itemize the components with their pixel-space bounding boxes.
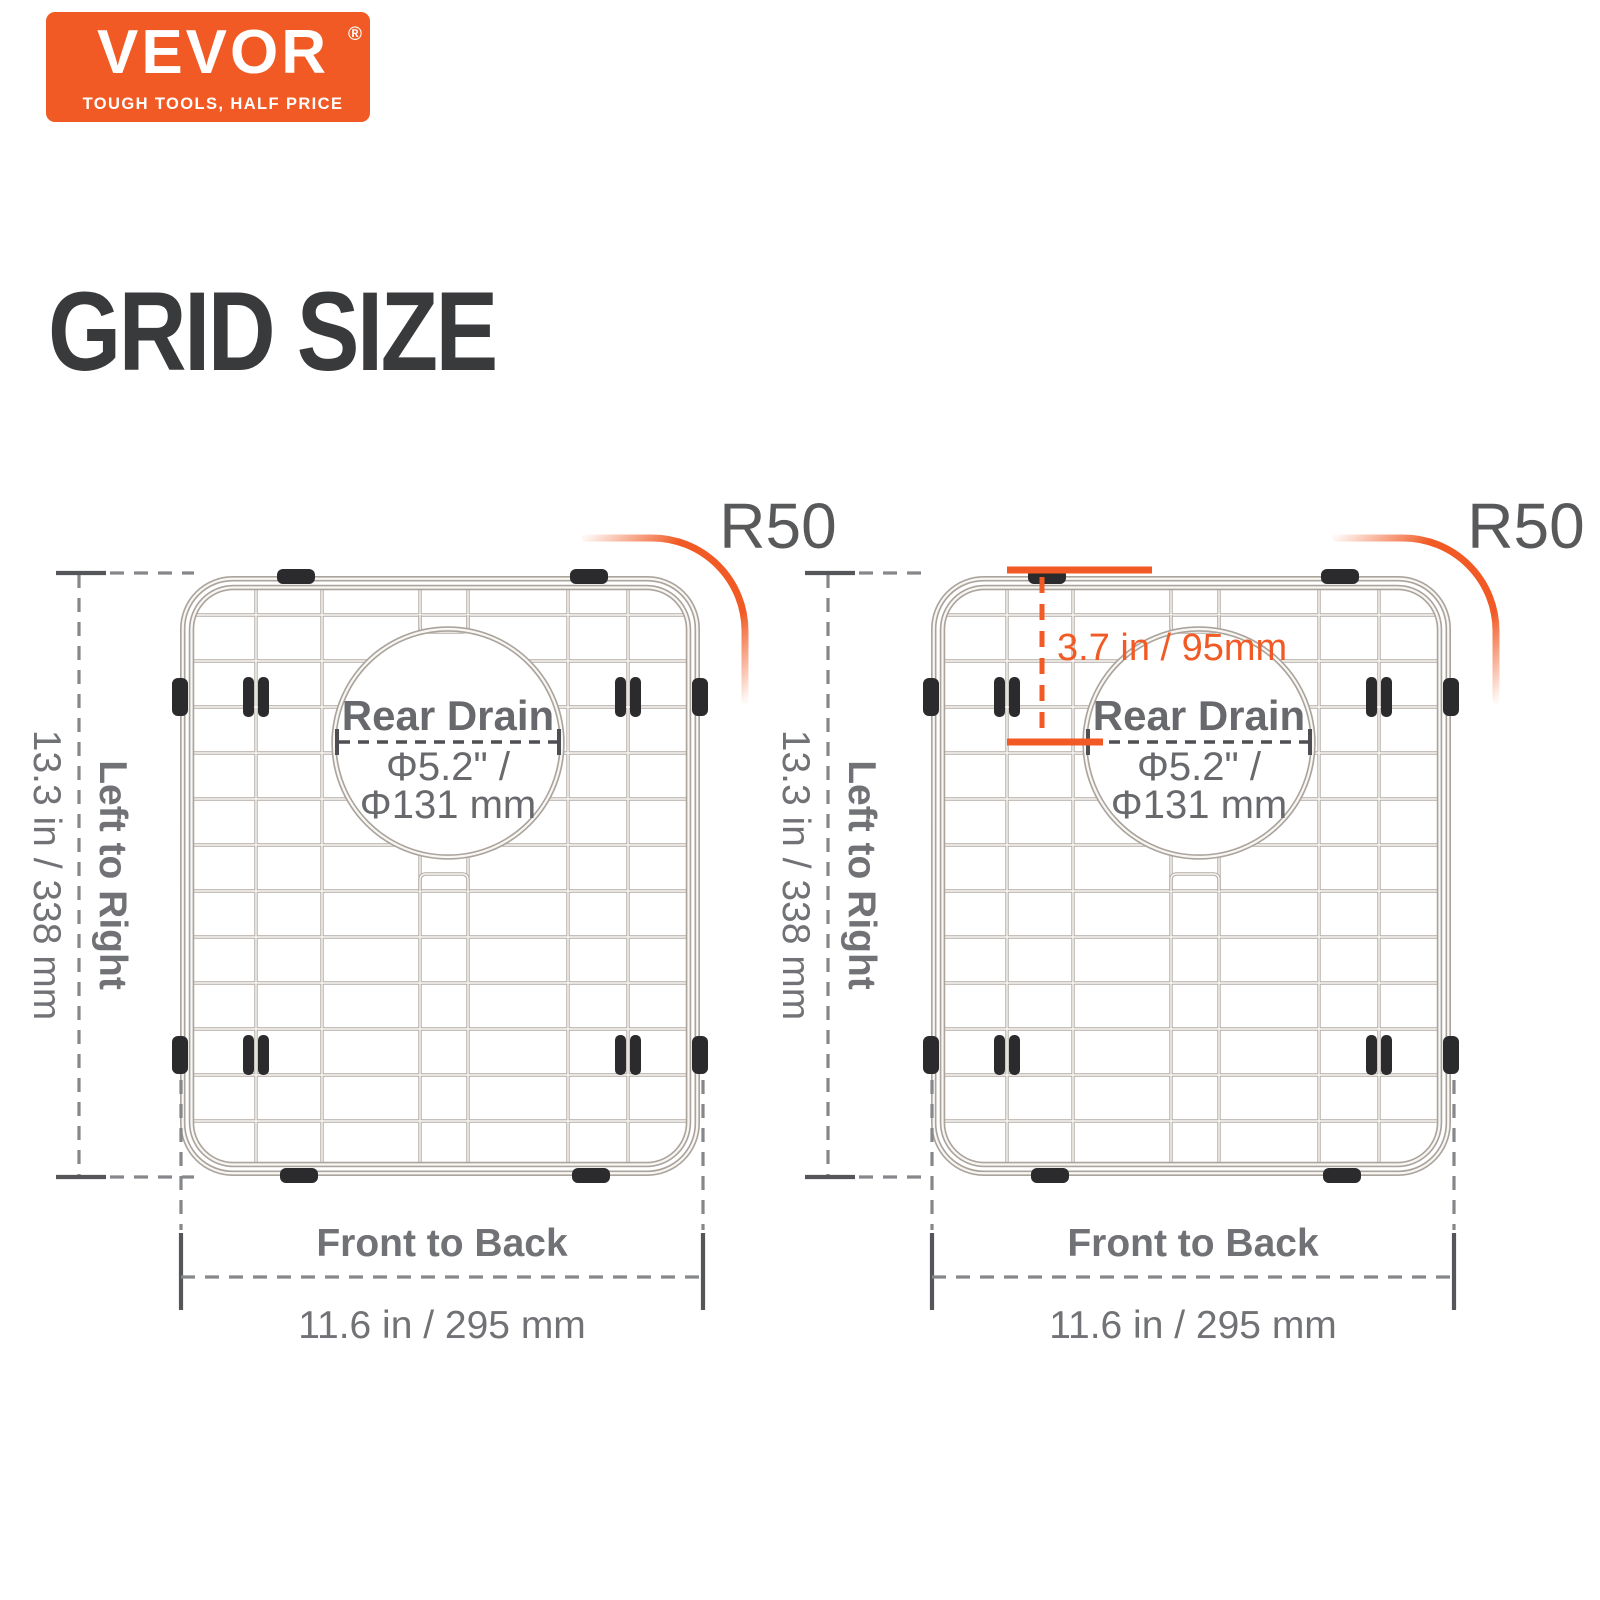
width-dim-label-left: Front to Back: [316, 1222, 568, 1265]
width-dim-value-right: 11.6 in / 295 mm: [1049, 1304, 1337, 1347]
page: { "logo": { "brand": "VEVOR", "registere…: [0, 0, 1600, 1600]
rear-drain-title-right: Rear Drain: [1093, 692, 1305, 739]
corner-radius-label-left: R50: [719, 490, 836, 562]
corner-radius-arc-right: [1336, 538, 1496, 700]
grid-size-diagram: R50 Rear Drain Φ5.2" / Φ131 mm 13.3 in /…: [0, 0, 1600, 1600]
width-dim-label-right: Front to Back: [1067, 1222, 1319, 1265]
width-dim-extensions-right: [932, 1080, 1454, 1230]
height-dim-label-right: Left to Right: [840, 760, 883, 990]
drain-diameter-mm-right: Φ131 mm: [1111, 783, 1287, 827]
height-dimension-right: 13.3 in / 338 mm Left to Right: [774, 573, 928, 1177]
height-dim-label-left: Left to Right: [91, 760, 134, 990]
sink-grid-left: [172, 569, 708, 1183]
height-dim-value-left: 13.3 in / 338 mm: [25, 730, 68, 1020]
corner-radius-arc-left: [585, 538, 745, 700]
width-dim-value-left: 11.6 in / 295 mm: [298, 1304, 586, 1347]
height-dimension-left: 13.3 in / 338 mm Left to Right: [25, 573, 194, 1177]
drain-diameter-mm-left: Φ131 mm: [360, 783, 536, 827]
rear-drain-title-left: Rear Drain: [342, 692, 554, 739]
width-dim-extensions-left: [181, 1080, 703, 1230]
height-dim-value-right: 13.3 in / 338 mm: [774, 730, 817, 1020]
corner-radius-label-right: R50: [1467, 490, 1584, 562]
drain-offset-value: 3.7 in / 95mm: [1057, 627, 1287, 669]
